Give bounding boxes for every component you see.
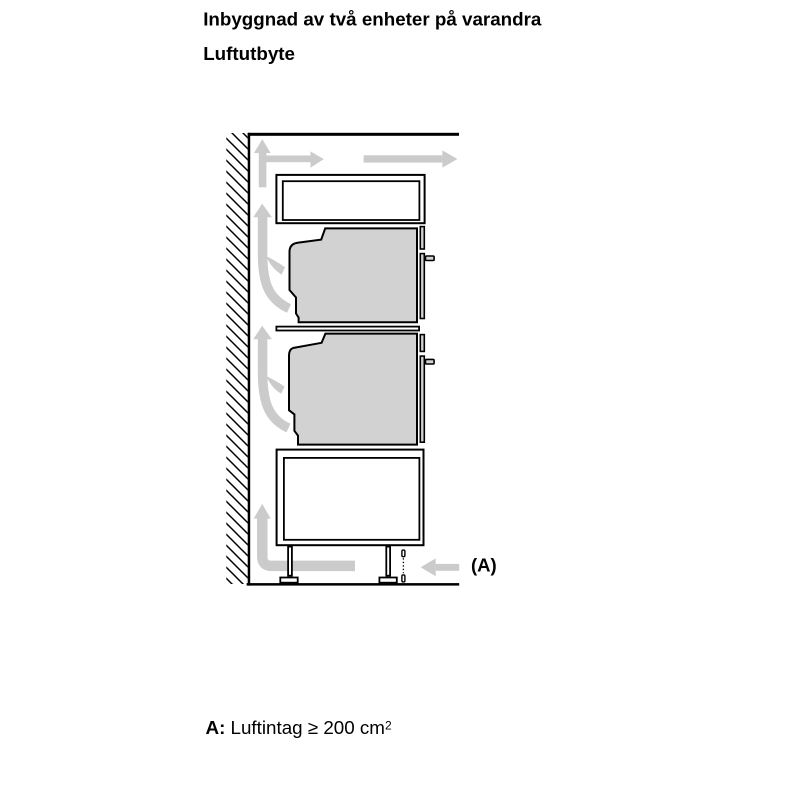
svg-text:Inbyggnad av två enheter på va: Inbyggnad av två enheter på varandra <box>203 8 542 29</box>
svg-text:A: Luftintag ≥ 200 cm2: A: Luftintag ≥ 200 cm2 <box>206 717 392 738</box>
svg-text:(A): (A) <box>471 555 497 576</box>
svg-text:Luftutbyte: Luftutbyte <box>203 43 295 64</box>
